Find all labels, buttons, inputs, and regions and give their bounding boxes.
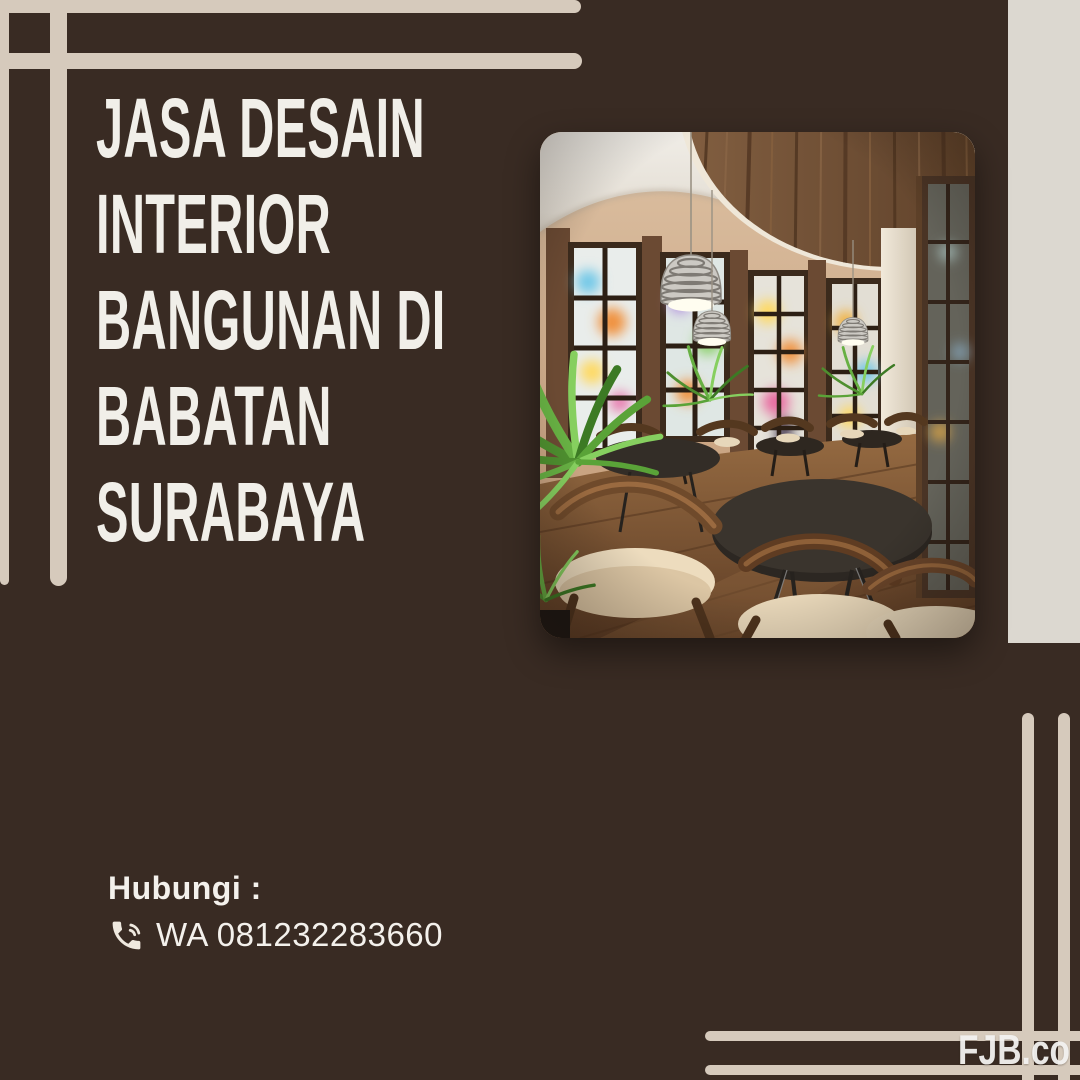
decor-top-edge-line [0,0,581,13]
headline-line: INTERIOR [96,176,446,272]
phone-in-talk-icon [108,917,145,954]
contact-block: Hubungi : WA 081232283660 [108,870,443,954]
decor-left-edge-line [0,0,9,585]
contact-line: WA 081232283660 [108,916,443,954]
poster-canvas: JASA DESAIN INTERIOR BANGUNAN DI BABATAN… [0,0,1080,1080]
headline-line: BANGUNAN DI [96,272,446,368]
decor-top-horizontal-line [0,53,582,69]
whatsapp-number: WA 081232283660 [156,916,443,954]
decor-bottom-right-vertical-line-1 [1022,713,1034,1080]
decor-right-panel [1008,0,1080,643]
cafe-interior-photo [540,132,975,638]
cafe-interior-illustration [540,132,975,638]
contact-heading: Hubungi : [108,870,443,907]
decor-bottom-right-vertical-line-2 [1058,713,1070,1080]
decor-left-vertical-line [50,0,67,586]
headline-line: BABATAN [96,368,446,464]
brand-watermark: FJB.co [958,1026,1070,1074]
headline-line: JASA DESAIN [96,80,446,176]
headline: JASA DESAIN INTERIOR BANGUNAN DI BABATAN… [96,80,446,560]
headline-line: SURABAYA [96,464,446,560]
